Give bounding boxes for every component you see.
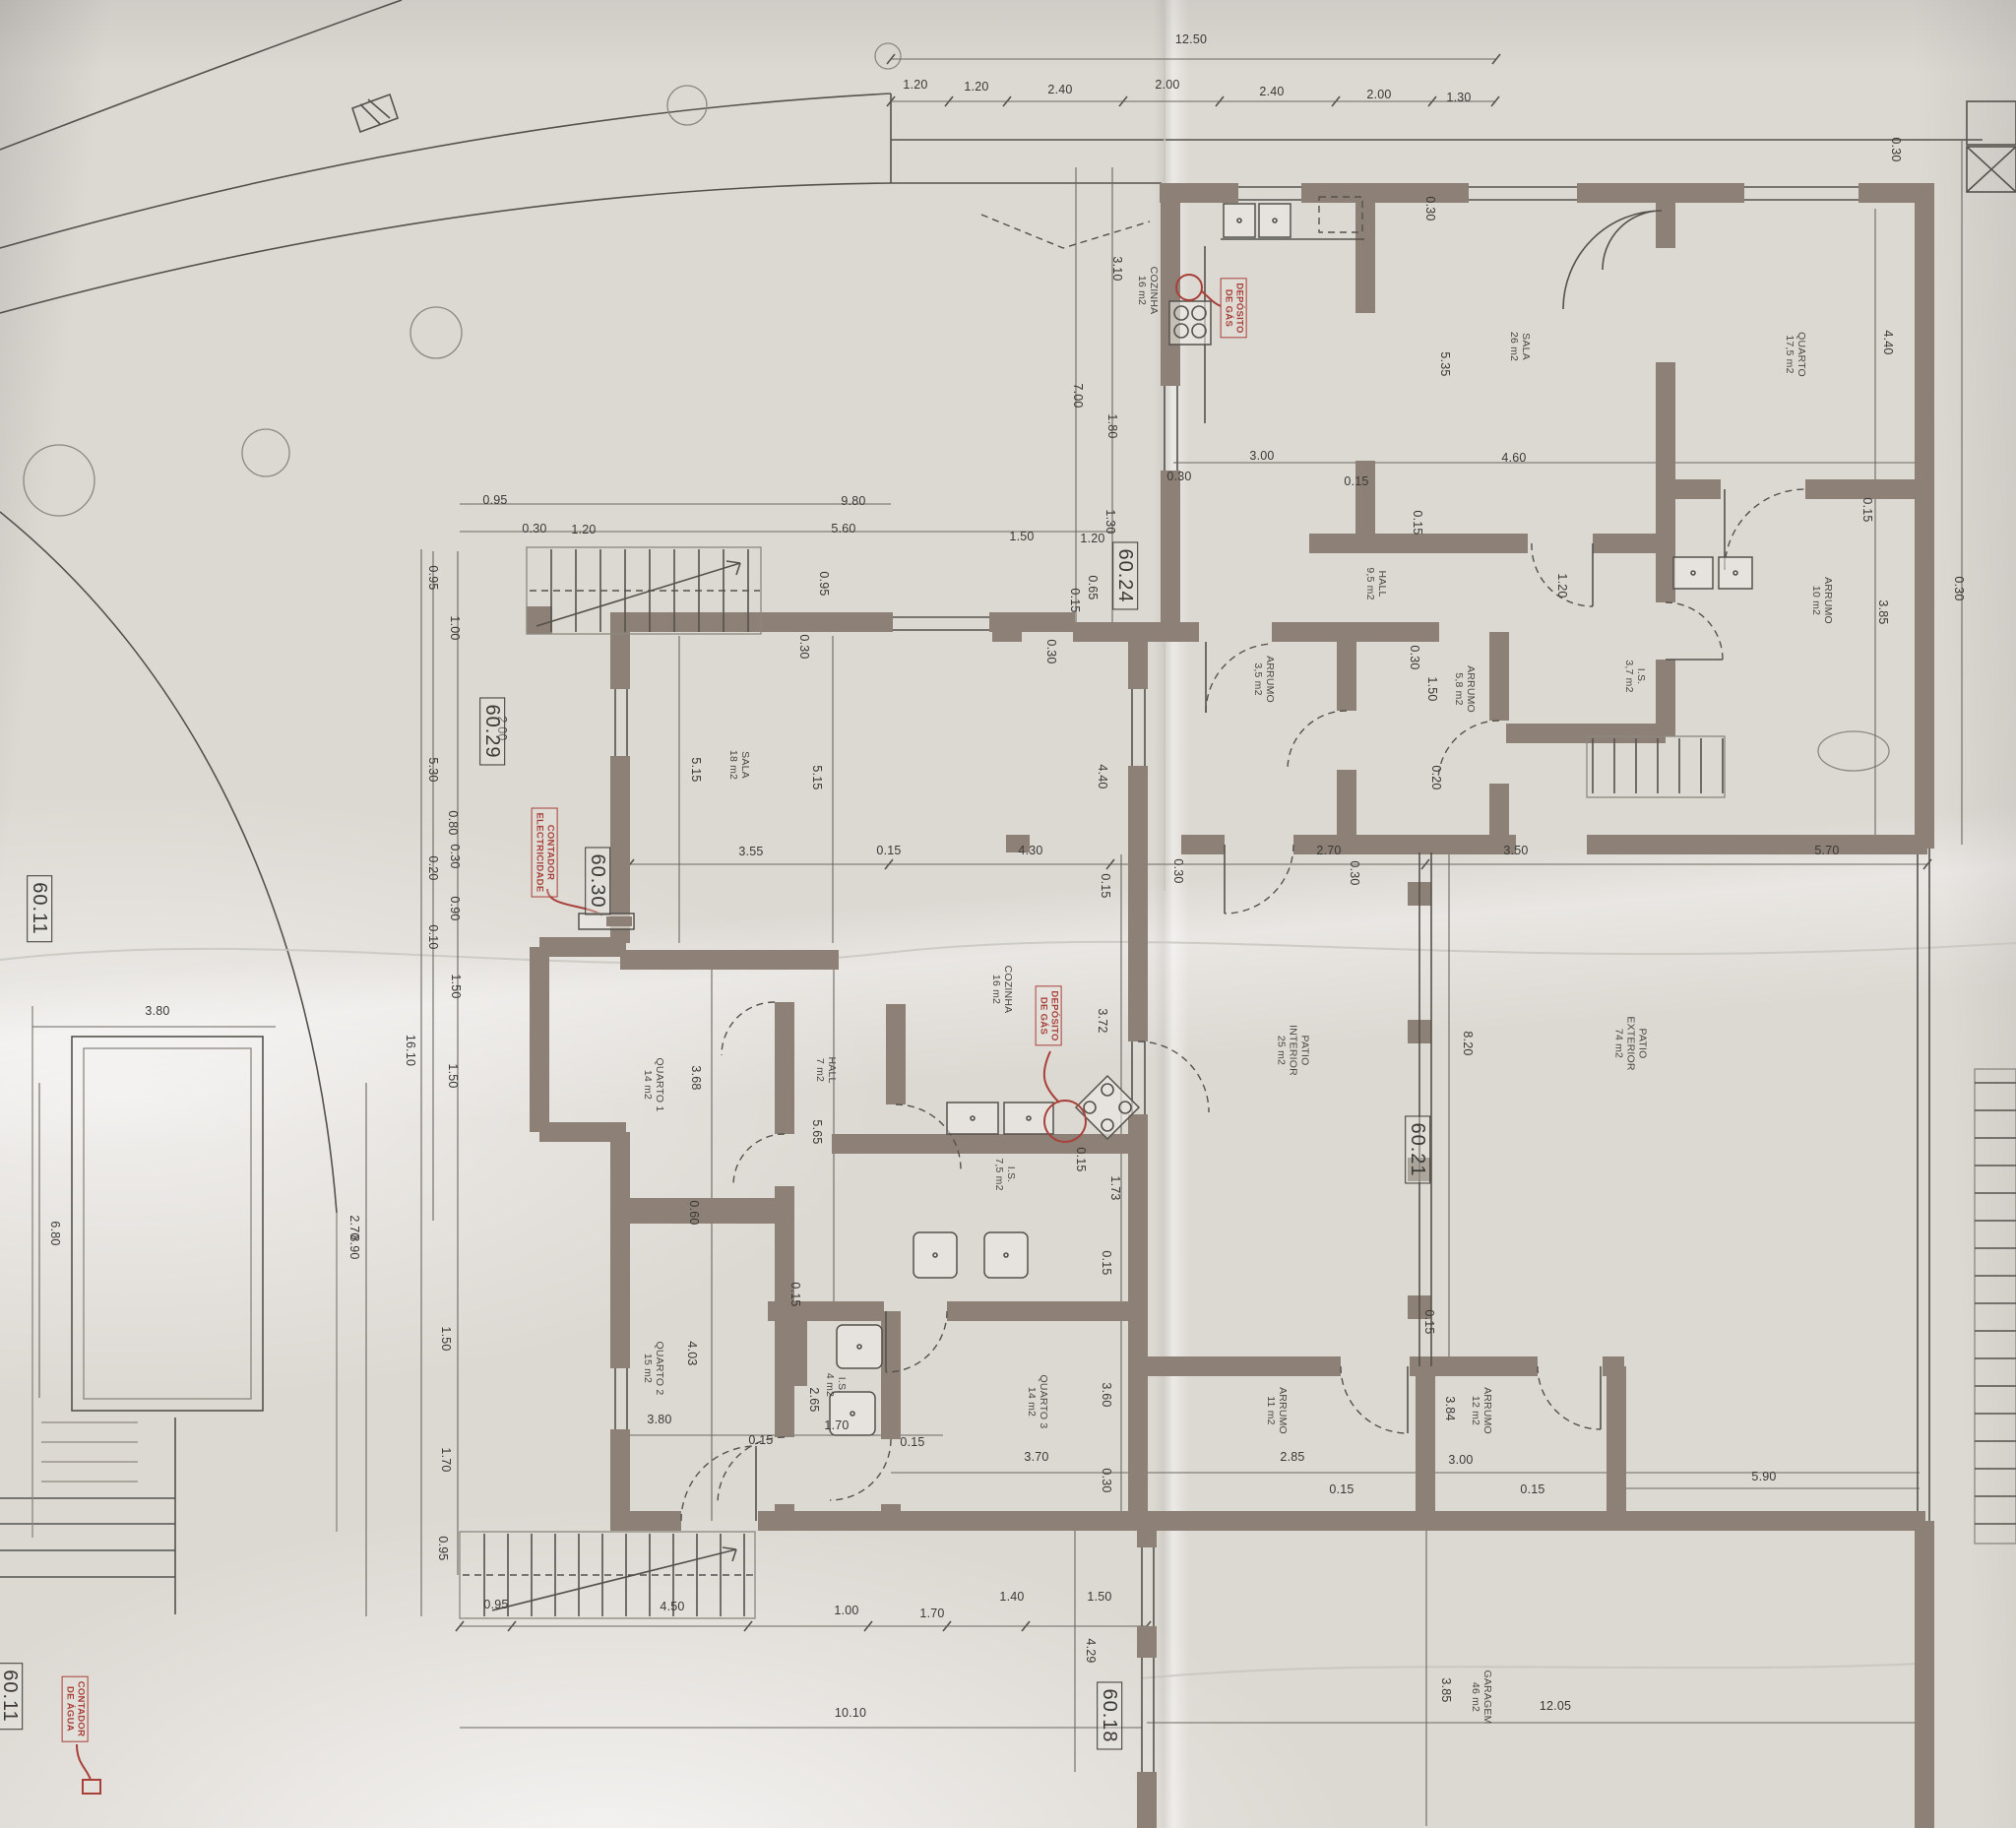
dimension-label: 4.29 bbox=[1084, 1638, 1098, 1663]
dimension-label: 5.15 bbox=[810, 765, 824, 789]
dimension-label: 0.15 bbox=[876, 844, 901, 857]
dimension-label: 9.80 bbox=[841, 494, 865, 508]
dimension-label: 0.95 bbox=[817, 571, 831, 596]
red-annotation-label: CONTADORELECTRICIDADE bbox=[531, 808, 557, 898]
dimension-label: 3.50 bbox=[1503, 844, 1528, 857]
dimension-label: 0.15 bbox=[900, 1435, 924, 1449]
dimension-label: 3.84 bbox=[1443, 1396, 1457, 1420]
dimension-label: 3.70 bbox=[1024, 1450, 1048, 1464]
dimension-label: 0.95 bbox=[426, 565, 440, 590]
room-label: COZINHA16 m2 bbox=[1135, 267, 1159, 315]
room-label: PATIOINTERIOR25 m2 bbox=[1275, 1025, 1309, 1076]
dimension-label: 4.50 bbox=[660, 1600, 684, 1613]
dimension-label: 5.65 bbox=[810, 1119, 824, 1144]
room-label: ARRUMO11 m2 bbox=[1264, 1387, 1288, 1434]
dimension-label: 2.65 bbox=[807, 1387, 821, 1412]
elevation-marker: 60.29 bbox=[479, 697, 505, 765]
dimension-label: 8.90 bbox=[347, 1234, 361, 1259]
elevation-marker: 60.24 bbox=[1112, 541, 1138, 609]
dimension-label: 0.30 bbox=[1044, 639, 1058, 663]
dimension-label: 1.70 bbox=[824, 1418, 849, 1432]
dimension-label: 0.15 bbox=[1422, 1309, 1436, 1334]
dimension-label: 2.40 bbox=[1047, 83, 1072, 96]
dimension-label: 0.15 bbox=[1100, 1250, 1113, 1275]
room-label: I.S.3,7 m2 bbox=[1622, 660, 1646, 692]
dimension-label: 3.00 bbox=[1249, 449, 1274, 463]
dimension-label: 16.10 bbox=[404, 1035, 417, 1066]
dimension-label: 3.80 bbox=[145, 1004, 169, 1018]
dimension-label: 0.20 bbox=[426, 855, 440, 880]
room-label: QUARTO17,5 m2 bbox=[1783, 332, 1806, 377]
dimension-label: 1.30 bbox=[1446, 91, 1471, 104]
dimension-label: 0.30 bbox=[797, 634, 811, 659]
dimension-label: 0.15 bbox=[1520, 1482, 1544, 1496]
dimension-label: 3.00 bbox=[1448, 1453, 1473, 1467]
room-label: HALL7 m2 bbox=[813, 1056, 837, 1083]
dimension-label: 2.00 bbox=[1155, 78, 1179, 92]
dimension-label: 0.30 bbox=[522, 522, 546, 536]
dimension-label: 7.00 bbox=[1071, 383, 1085, 408]
elevation-marker: 60.18 bbox=[1097, 1681, 1122, 1749]
dimension-label: 1.00 bbox=[448, 615, 462, 640]
room-label: QUARTO 114 m2 bbox=[641, 1058, 664, 1112]
dimension-label: 1.50 bbox=[439, 1326, 453, 1351]
elevation-marker: 60.11 bbox=[27, 875, 52, 942]
dimension-label: 0.30 bbox=[1408, 645, 1421, 669]
dimension-label: 0.15 bbox=[1344, 474, 1368, 488]
dimension-label: 0.15 bbox=[1329, 1482, 1354, 1496]
dimension-label: 6.80 bbox=[48, 1221, 62, 1245]
dimension-label: 0.15 bbox=[1860, 497, 1874, 522]
dimension-label: 2.40 bbox=[1259, 85, 1284, 98]
dimension-label: 0.10 bbox=[426, 924, 440, 949]
dimension-label: 0.30 bbox=[1348, 860, 1361, 885]
dimension-label: 0.90 bbox=[448, 896, 462, 920]
dimension-label: 0.95 bbox=[436, 1536, 450, 1560]
dimension-label: 0.95 bbox=[482, 493, 507, 507]
dimension-label: 10.10 bbox=[835, 1706, 866, 1720]
dimension-label: 0.65 bbox=[1086, 575, 1100, 599]
dimension-label: 0.15 bbox=[1099, 873, 1112, 898]
dimension-label: 0.30 bbox=[1952, 576, 1966, 600]
dimension-label: 0.60 bbox=[687, 1200, 701, 1225]
dimension-label: 1.70 bbox=[919, 1607, 944, 1620]
dimension-label: 12.50 bbox=[1175, 32, 1207, 46]
dimension-label: 1.50 bbox=[1087, 1590, 1111, 1604]
dimension-label: 0.80 bbox=[446, 810, 460, 835]
dimension-label: 0.20 bbox=[1429, 765, 1443, 789]
room-label: GARAGEM46 m2 bbox=[1469, 1670, 1492, 1724]
dimension-label: 2.70 bbox=[1316, 844, 1341, 857]
dimension-label: 5.35 bbox=[1438, 351, 1452, 376]
dimension-label: 0.15 bbox=[1074, 1147, 1088, 1171]
dimension-label: 0.15 bbox=[1411, 510, 1424, 535]
blueprint-paper: 12.501.201.202.402.002.402.001.300.300.3… bbox=[0, 0, 2016, 1828]
dimension-label: 1.50 bbox=[449, 974, 463, 998]
dimension-label: 0.15 bbox=[788, 1282, 802, 1306]
dimension-label: 3.60 bbox=[1100, 1382, 1113, 1407]
dimension-label: 5.70 bbox=[1814, 844, 1839, 857]
room-label: QUARTO 215 m2 bbox=[641, 1342, 664, 1396]
dimension-label: 3.85 bbox=[1439, 1677, 1453, 1702]
dimension-label: 1.20 bbox=[571, 523, 596, 536]
dimension-label: 1.50 bbox=[1009, 530, 1034, 543]
room-label: ARRUMO10 m2 bbox=[1809, 577, 1833, 624]
dimension-label: 2.00 bbox=[1366, 88, 1391, 101]
dimension-label: 12.05 bbox=[1540, 1699, 1571, 1713]
dimension-label: 8.20 bbox=[1461, 1031, 1475, 1055]
dimension-label: 1.73 bbox=[1108, 1175, 1122, 1200]
dimension-label: 1.50 bbox=[1425, 676, 1439, 701]
dimension-label: 1.40 bbox=[999, 1590, 1024, 1604]
room-label: SALA26 m2 bbox=[1507, 332, 1531, 361]
red-annotation-label: CONTADORDE ÁGUA bbox=[61, 1676, 88, 1742]
dimension-label: 1.00 bbox=[834, 1604, 858, 1617]
room-label: HALL9,5 m2 bbox=[1363, 567, 1387, 599]
dimension-label: 3.68 bbox=[689, 1065, 703, 1090]
room-label: I.S.7,5 m2 bbox=[992, 1158, 1016, 1190]
dimension-label: 3.10 bbox=[1110, 256, 1124, 281]
room-label: QUARTO 314 m2 bbox=[1025, 1375, 1048, 1429]
dimension-label: 0.30 bbox=[1423, 196, 1437, 221]
room-label: SALA18 m2 bbox=[726, 750, 750, 780]
dimension-label: 1.20 bbox=[964, 80, 988, 94]
red-annotation-label: DEPÓSITODE GÁS bbox=[1220, 278, 1246, 338]
dimension-label: 0.30 bbox=[1166, 470, 1191, 483]
dimension-label: 4.30 bbox=[1018, 844, 1042, 857]
dimension-label: 3.55 bbox=[738, 845, 763, 858]
dimension-label: 5.15 bbox=[689, 757, 703, 782]
dimension-label: 5.30 bbox=[426, 757, 440, 782]
dimension-label: 1.20 bbox=[1080, 532, 1104, 545]
dimension-label: 0.30 bbox=[1100, 1468, 1113, 1492]
elevation-marker: 60.30 bbox=[585, 847, 610, 914]
dimension-label: 1.20 bbox=[903, 78, 927, 92]
dimension-label: 0.15 bbox=[748, 1433, 773, 1447]
dimension-label: 3.80 bbox=[647, 1413, 671, 1426]
room-label: I.S.4 m2 bbox=[823, 1373, 847, 1397]
labels-layer: 12.501.201.202.402.002.402.001.300.300.3… bbox=[0, 0, 2016, 1828]
dimension-label: 1.50 bbox=[446, 1063, 460, 1088]
dimension-label: 2.85 bbox=[1280, 1450, 1304, 1464]
dimension-label: 4.40 bbox=[1096, 764, 1109, 788]
room-label: ARRUMO3,5 m2 bbox=[1251, 656, 1275, 703]
dimension-label: 5.90 bbox=[1751, 1470, 1776, 1483]
dimension-label: 1.20 bbox=[1555, 573, 1569, 598]
dimension-label: 4.40 bbox=[1881, 330, 1895, 354]
dimension-label: 0.30 bbox=[448, 844, 462, 868]
dimension-label: 1.30 bbox=[1103, 509, 1117, 534]
room-label: COZINHA16 m2 bbox=[989, 966, 1013, 1014]
room-label: ARRUMO12 m2 bbox=[1469, 1387, 1492, 1434]
dimension-label: 1.70 bbox=[439, 1447, 453, 1472]
dimension-label: 1.80 bbox=[1105, 413, 1119, 438]
red-annotation-label: DEPÓSITODE GÁS bbox=[1035, 985, 1061, 1045]
dimension-label: 3.85 bbox=[1876, 599, 1890, 624]
elevation-marker: 60.11 bbox=[0, 1663, 23, 1730]
dimension-label: 4.60 bbox=[1501, 451, 1526, 465]
dimension-label: 5.60 bbox=[831, 522, 855, 536]
dimension-label: 4.03 bbox=[685, 1341, 699, 1365]
dimension-label: 0.15 bbox=[1068, 588, 1082, 612]
dimension-label: 0.30 bbox=[1171, 858, 1185, 883]
room-label: PATIOEXTERIOR74 m2 bbox=[1612, 1016, 1647, 1070]
room-label: ARRUMO5,8 m2 bbox=[1452, 665, 1476, 713]
dimension-label: 3.72 bbox=[1096, 1008, 1109, 1033]
dimension-label: 0.95 bbox=[483, 1598, 508, 1611]
dimension-label: 0.30 bbox=[1889, 137, 1903, 161]
elevation-marker: 60.21 bbox=[1405, 1115, 1430, 1183]
